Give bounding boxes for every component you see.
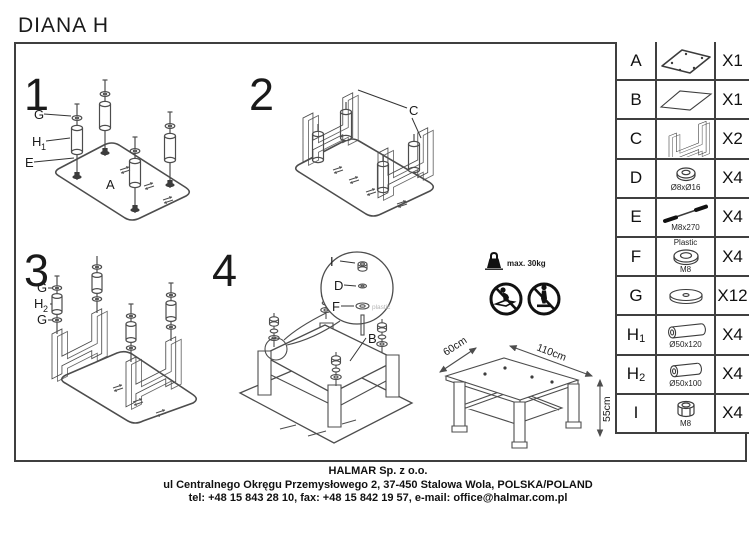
footer-contact: tel: +48 15 843 28 10, fax: +48 15 842 1… [0, 492, 756, 506]
step-4-diagram: I D F plastic B [222, 243, 432, 453]
max-load-text: max. 30kg [507, 259, 546, 268]
dim-width: 110cm [535, 342, 568, 364]
footer: HALMAR Sp. z o.o. ul Centralnego Okręgu … [0, 465, 756, 506]
finished-table [446, 358, 581, 448]
assembly-instruction-sheet: DIANA H 1 2 3 4 G H 1 E A [0, 0, 756, 534]
part-qty: X4 [716, 356, 749, 393]
label-I: I [330, 254, 334, 269]
label-G-top: G [37, 280, 47, 295]
table-row: F PlasticM8 X4 [617, 238, 749, 277]
part-letter: I [634, 403, 639, 423]
label-E: E [25, 155, 34, 170]
part-letter: A [630, 51, 641, 71]
frame-icon [660, 121, 712, 157]
glass-shelf-icon [658, 87, 714, 113]
table-row: C X2 [617, 120, 749, 159]
table-row: D Ø8xØ16 X4 [617, 160, 749, 199]
label-H1: H [32, 134, 41, 149]
label-G-bottom: G [37, 312, 47, 327]
leg-cylinder-icon [664, 321, 708, 341]
table-row: G X12 [617, 277, 749, 316]
page-title: DIANA H [18, 14, 109, 38]
part-spec: M8 [680, 266, 691, 274]
part-letter: H [627, 325, 639, 345]
table-row: A X1 [617, 42, 749, 81]
part-spec: M8 [680, 420, 691, 428]
table-row: E M8x270 X4 [617, 199, 749, 238]
part-letter-sub: 2 [639, 372, 645, 384]
bolt-icon [661, 202, 711, 224]
table-row: H2 Ø50x100 X4 [617, 356, 749, 395]
label-B: B [368, 331, 377, 346]
weight-icon [485, 253, 503, 269]
part-letter: C [630, 129, 642, 149]
spacer-cylinder-icon [666, 360, 706, 380]
pad-icon [663, 287, 709, 305]
label-D: D [334, 278, 343, 293]
part-spec-top: Plastic [674, 239, 698, 247]
step-2-diagram: C [283, 78, 468, 240]
part-qty: X1 [716, 81, 749, 118]
step-3-diagram: G H 2 G [28, 256, 233, 440]
part-letter: B [630, 90, 641, 110]
nut-icon [668, 398, 704, 420]
part-letter: D [630, 168, 642, 188]
part-qty: X4 [716, 160, 749, 197]
step-2-number: 2 [249, 72, 274, 117]
parts-table: A X1 B X1 C X2 D Ø8xØ16 X4 E M8x270 X4 F… [615, 42, 749, 434]
table-row: B X1 [617, 81, 749, 120]
washer-icon [666, 164, 706, 184]
glass-top-icon [658, 46, 714, 76]
part-qty: X1 [716, 42, 749, 79]
no-standing-icon [529, 284, 559, 314]
prohibition-icons [487, 279, 565, 319]
part-qty: X4 [716, 238, 749, 275]
label-F: F [332, 299, 340, 314]
part-qty: X2 [716, 120, 749, 157]
max-load-warning: max. 30kg [483, 251, 553, 273]
table-row: H1 Ø50x120 X4 [617, 316, 749, 355]
part-qty: X4 [716, 316, 749, 353]
part-spec: Ø50x120 [669, 341, 701, 349]
no-sitting-icon [491, 284, 521, 314]
footer-company: HALMAR Sp. z o.o. [0, 465, 756, 479]
plastic-washer-icon [664, 248, 708, 266]
label-H2: H [34, 296, 43, 311]
label-plastic-note: plastic [372, 304, 391, 311]
part-letter: E [630, 207, 641, 227]
part-letter-sub: 1 [639, 333, 645, 345]
part-spec: Ø50x100 [669, 380, 701, 388]
part-letter: F [631, 247, 641, 267]
part-qty: X12 [716, 277, 749, 314]
part-spec: M8x270 [671, 224, 699, 232]
footer-address: ul Centralnego Okręgu Przemysłowego 2, 3… [0, 479, 756, 493]
label-H1-sub: 1 [41, 142, 46, 152]
part-qty: X4 [716, 199, 749, 236]
dimension-drawing: 60cm 110cm 55cm [430, 330, 612, 452]
dim-height: 55cm [601, 396, 612, 422]
part-spec: Ø8xØ16 [671, 184, 701, 192]
part-letter: H [627, 364, 639, 384]
label-C: C [409, 103, 418, 118]
part-qty: X4 [716, 395, 749, 432]
label-A: A [106, 177, 115, 192]
table-row: I M8 X4 [617, 395, 749, 434]
step-1-diagram: G H 1 E A [20, 74, 235, 236]
label-G: G [34, 107, 44, 122]
part-letter: G [629, 286, 642, 306]
